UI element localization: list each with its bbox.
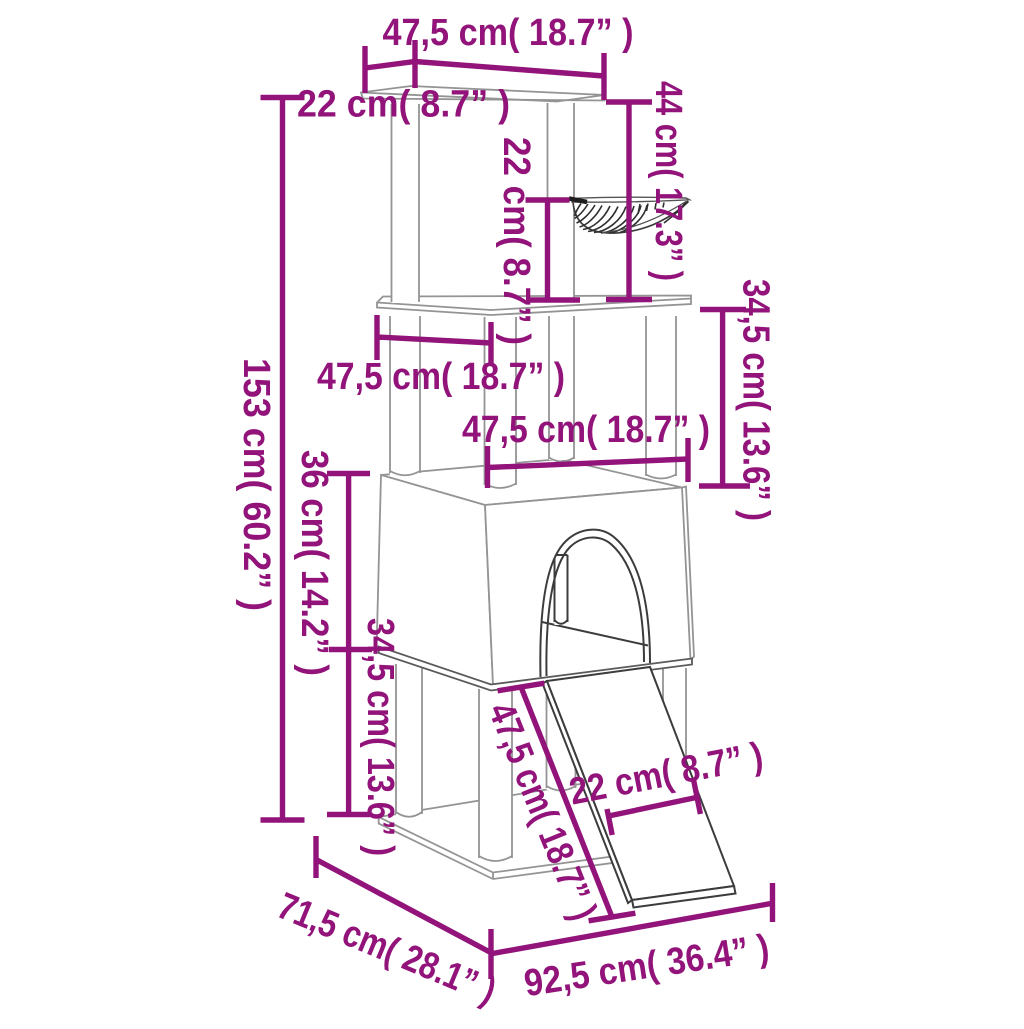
svg-text:44 cm( 17.3” ): 44 cm( 17.3” ) [647,81,689,281]
svg-text:47,5 cm( 18.7” ): 47,5 cm( 18.7” ) [383,12,634,54]
svg-text:47,5 cm( 18.7” ): 47,5 cm( 18.7” ) [462,409,710,451]
svg-text:22 cm( 8.7” ): 22 cm( 8.7” ) [495,137,537,345]
svg-text:22 cm( 8.7” ): 22 cm( 8.7” ) [297,84,510,126]
svg-text:47,5 cm( 18.7” ): 47,5 cm( 18.7” ) [317,356,565,398]
svg-text:34,5 cm( 13.6” ): 34,5 cm( 13.6” ) [735,279,777,521]
svg-text:34,5 cm( 13.6” ): 34,5 cm( 13.6” ) [359,618,401,856]
svg-text:153 cm( 60.2” ): 153 cm( 60.2” ) [235,358,277,611]
svg-text:36 cm( 14.2” ): 36 cm( 14.2” ) [293,450,335,676]
